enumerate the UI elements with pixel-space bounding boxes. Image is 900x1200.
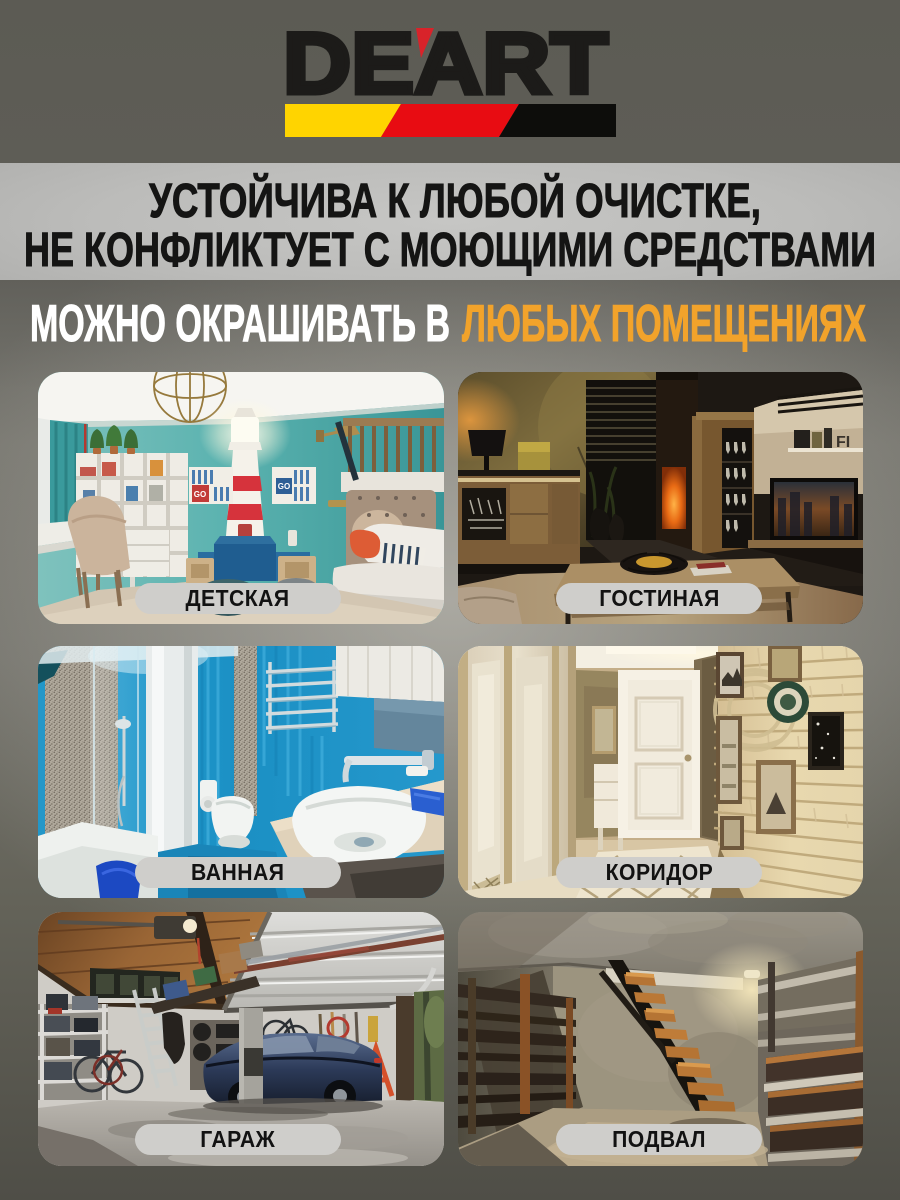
- svg-text:GO: GO: [194, 490, 206, 499]
- svg-text:ЛЮБЫХ ПОМЕЩЕНИЯХ: ЛЮБЫХ ПОМЕЩЕНИЯХ: [462, 295, 866, 353]
- svg-text:МОЖНО ОКРАШИВАТЬ В: МОЖНО ОКРАШИВАТЬ В: [30, 295, 450, 353]
- svg-text:FI: FI: [836, 434, 850, 451]
- svg-text:УСТОЙЧИВА К ЛЮБОЙ ОЧИСТКЕ,: УСТОЙЧИВА К ЛЮБОЙ ОЧИСТКЕ,: [149, 173, 761, 228]
- svg-text:DEART: DEART: [283, 16, 608, 112]
- svg-text:GO: GO: [278, 482, 290, 491]
- svg-text:НЕ КОНФЛИКТУЕТ С МОЮЩИМИ СРЕДС: НЕ КОНФЛИКТУЕТ С МОЮЩИМИ СРЕДСТВАМИ: [24, 224, 876, 277]
